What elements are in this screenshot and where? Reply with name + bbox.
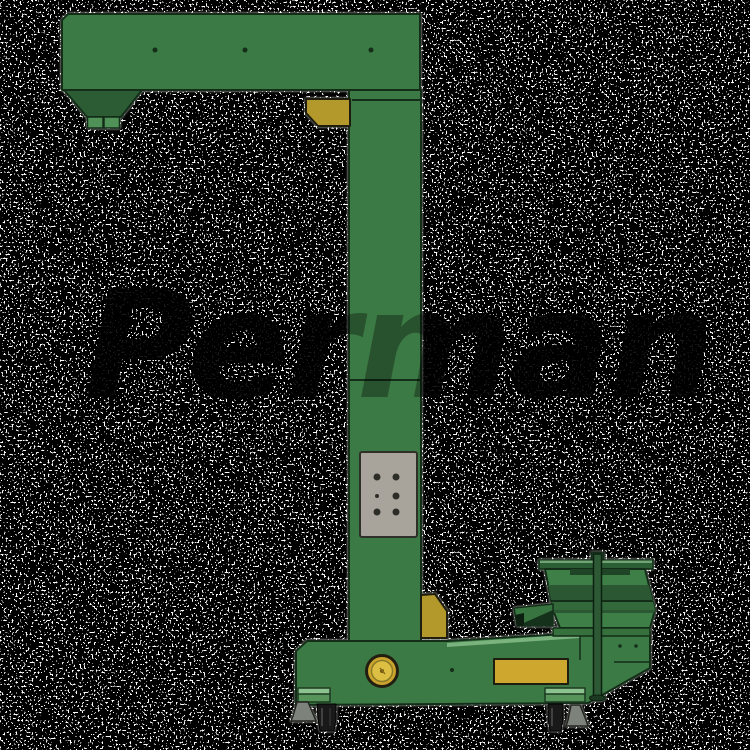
left-mount-plate-bottom [298,694,330,702]
base-bolt-dot [450,668,454,672]
hopper-outlet-left [88,117,104,128]
boom-bolt-dot [153,48,158,53]
watermark-text-overlay: Perman [84,277,712,437]
feeder-support-rod [594,554,602,697]
top-boom-arm [62,14,420,90]
top-joint-gusset [306,99,350,126]
boom-bolt-dot [243,48,248,53]
right-caster-wheel [548,704,563,731]
discharge-hopper [64,90,142,117]
right-leveling-foot [566,705,588,726]
product-image-canvas: Perman [0,0,750,750]
base-joint-gusset [421,594,447,638]
feeder-rod-foot [590,695,606,701]
hopper-outlet-right [104,117,120,128]
left-caster-wheel [317,704,336,731]
boom-bolt-dot [369,48,374,53]
base-bolt-dot [618,644,622,648]
electrical-panel [360,452,417,537]
right-mount-plate-bottom [545,694,585,702]
base-bolt-dot [634,644,638,648]
base-yellow-plate [494,659,568,684]
